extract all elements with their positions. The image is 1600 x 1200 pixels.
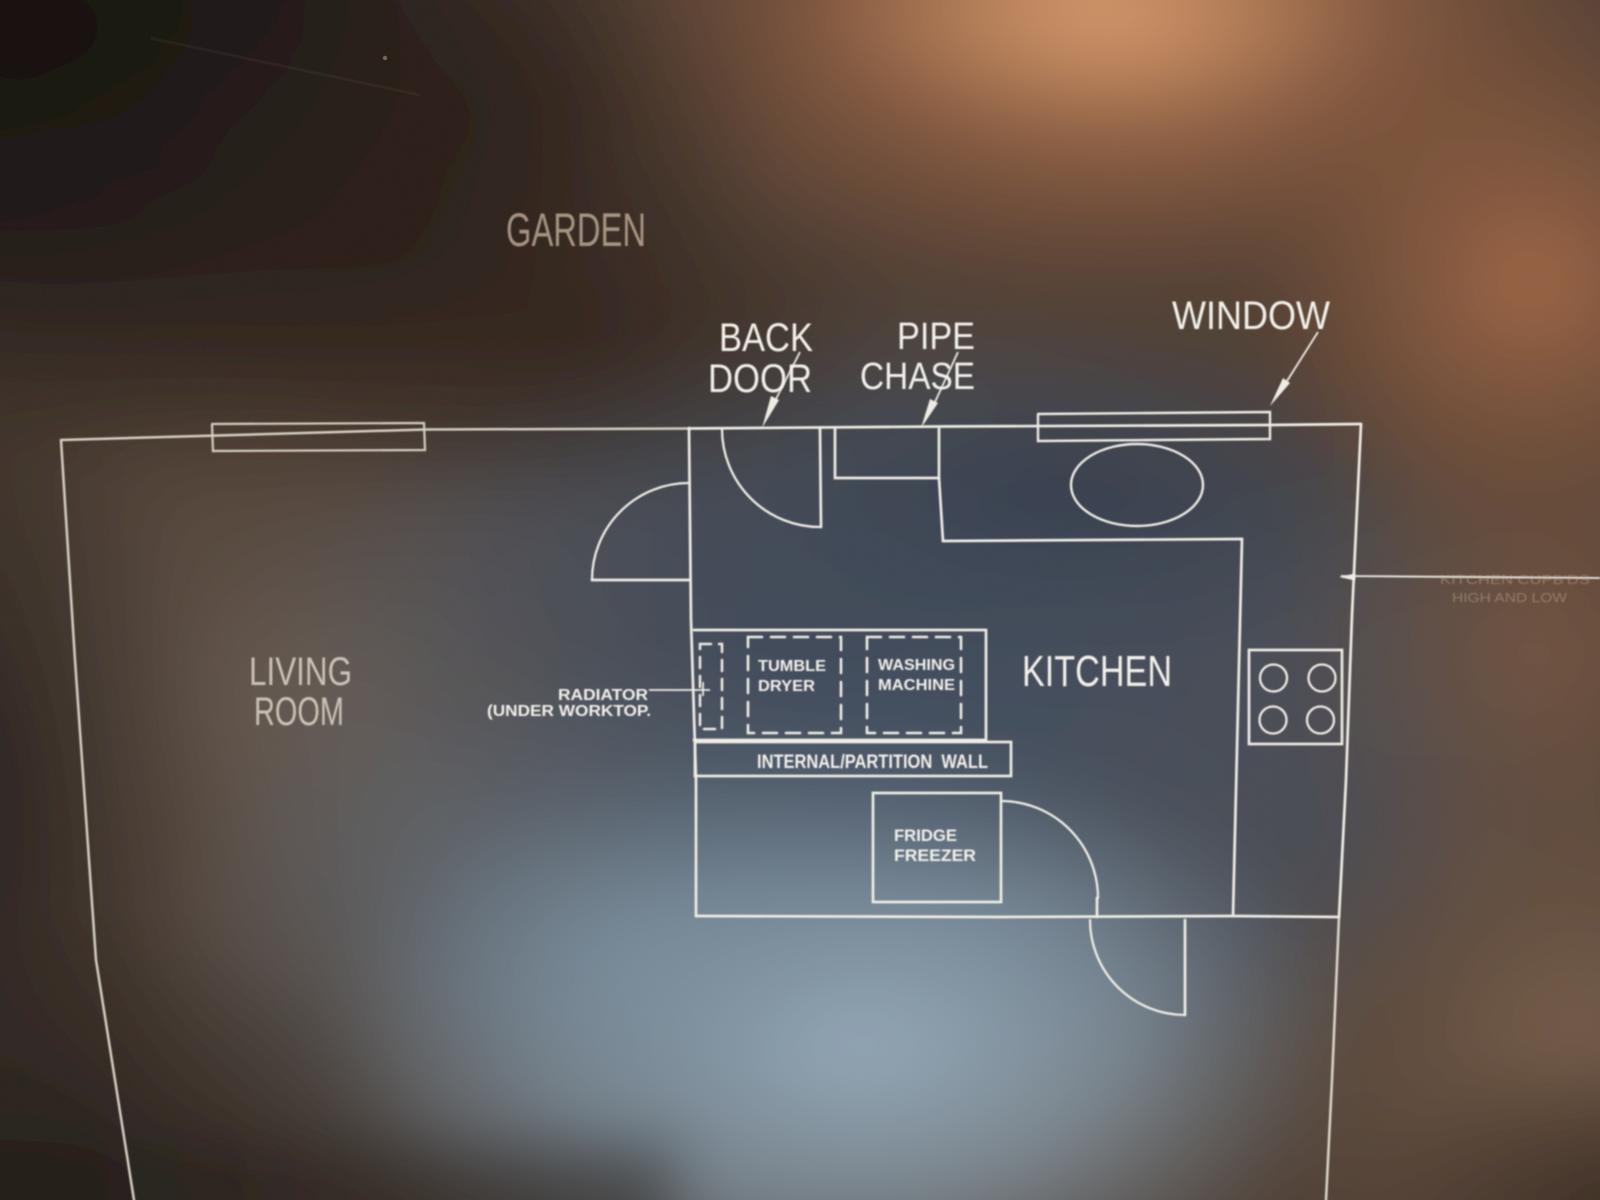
- svg-text:LIVING: LIVING: [249, 650, 352, 694]
- svg-text:DOOR: DOOR: [708, 357, 812, 401]
- svg-text:WINDOW: WINDOW: [1172, 294, 1330, 338]
- svg-text:INTERNAL/PARTITION WALL: INTERNAL/PARTITION WALL: [757, 752, 988, 773]
- svg-text:RADIATOR: RADIATOR: [558, 687, 648, 704]
- svg-text:MACHINE: MACHINE: [878, 677, 955, 694]
- svg-text:CHASE: CHASE: [860, 356, 975, 398]
- svg-text:TUMBLE: TUMBLE: [758, 658, 826, 675]
- svg-text:GARDEN: GARDEN: [506, 203, 646, 256]
- svg-text:KITCHEN CUPB'DS: KITCHEN CUPB'DS: [1440, 572, 1590, 587]
- svg-text:(UNDER WORKTOP.: (UNDER WORKTOP.: [487, 703, 651, 720]
- svg-text:BACK: BACK: [719, 316, 813, 360]
- svg-text:WASHING: WASHING: [878, 657, 955, 674]
- svg-text:KITCHEN: KITCHEN: [1022, 647, 1172, 696]
- svg-text:FREEZER: FREEZER: [894, 846, 976, 865]
- svg-text:PIPE: PIPE: [897, 316, 975, 358]
- svg-text:FRIDGE: FRIDGE: [894, 826, 957, 845]
- svg-text:ROOM: ROOM: [254, 690, 344, 734]
- svg-text:DRYER: DRYER: [758, 678, 815, 695]
- svg-text:HIGH AND LOW: HIGH AND LOW: [1452, 590, 1568, 605]
